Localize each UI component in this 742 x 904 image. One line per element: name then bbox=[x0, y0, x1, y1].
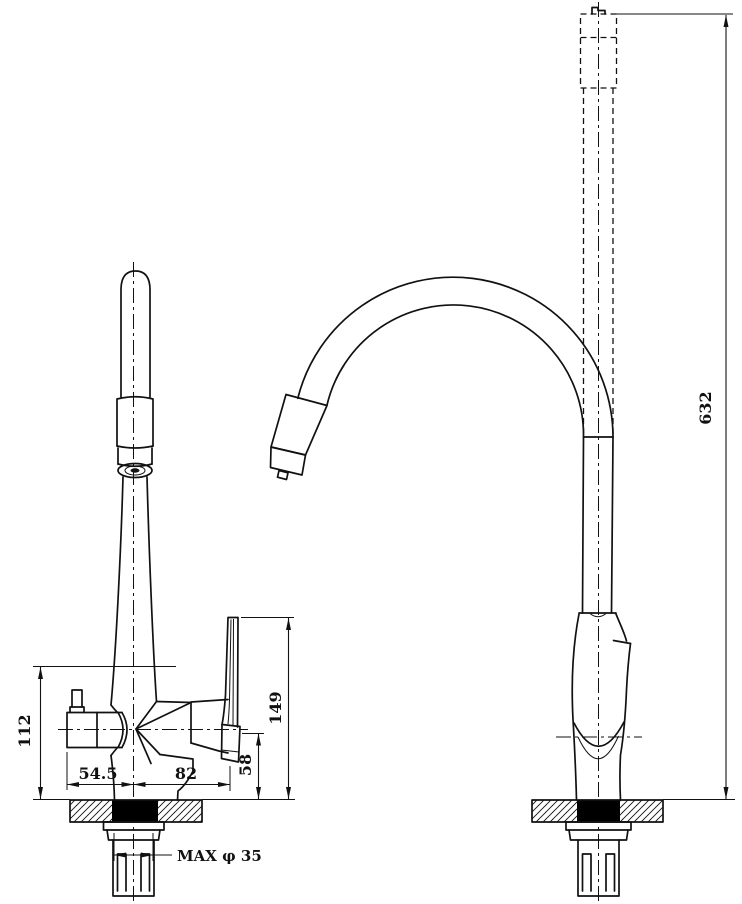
side-spray-head bbox=[271, 395, 328, 480]
side-riser bbox=[579, 437, 616, 617]
side-mount-hole bbox=[577, 800, 620, 822]
dimension-632: 632 bbox=[612, 14, 735, 800]
side-countertop bbox=[532, 800, 663, 822]
front-view: 112 54.5 82 58 1 bbox=[15, 262, 295, 904]
valve-lever bbox=[72, 690, 82, 707]
side-body bbox=[572, 614, 630, 800]
dim-label-632: 632 bbox=[696, 391, 715, 424]
dimension-58: 58 bbox=[236, 734, 264, 800]
front-side-valve bbox=[67, 690, 127, 748]
aerator-outlet bbox=[131, 468, 140, 472]
front-shank bbox=[104, 822, 165, 896]
dim-label-82: 82 bbox=[175, 764, 197, 783]
side-view: 632 bbox=[271, 2, 736, 904]
dim-label-58: 58 bbox=[236, 754, 255, 776]
side-shank bbox=[566, 822, 631, 896]
front-spout-tube bbox=[121, 271, 150, 397]
nozzle-tip bbox=[278, 471, 289, 480]
front-countertop bbox=[70, 800, 202, 822]
gooseneck-spout bbox=[298, 277, 613, 437]
dim-label-max-35: MAX φ 35 bbox=[177, 847, 262, 865]
front-spray-head bbox=[117, 397, 153, 478]
faucet-drawing: 112 54.5 82 58 1 bbox=[0, 0, 742, 904]
dim-label-54-5: 54.5 bbox=[79, 764, 118, 783]
front-handle bbox=[222, 618, 241, 763]
technical-drawing-canvas: 112 54.5 82 58 1 bbox=[0, 0, 742, 904]
handle-edge bbox=[614, 641, 631, 644]
dimension-max-diameter-35: MAX φ 35 bbox=[114, 833, 262, 865]
dim-label-149: 149 bbox=[266, 691, 285, 724]
front-mount-hole bbox=[112, 800, 158, 822]
dim-label-112: 112 bbox=[15, 714, 34, 747]
